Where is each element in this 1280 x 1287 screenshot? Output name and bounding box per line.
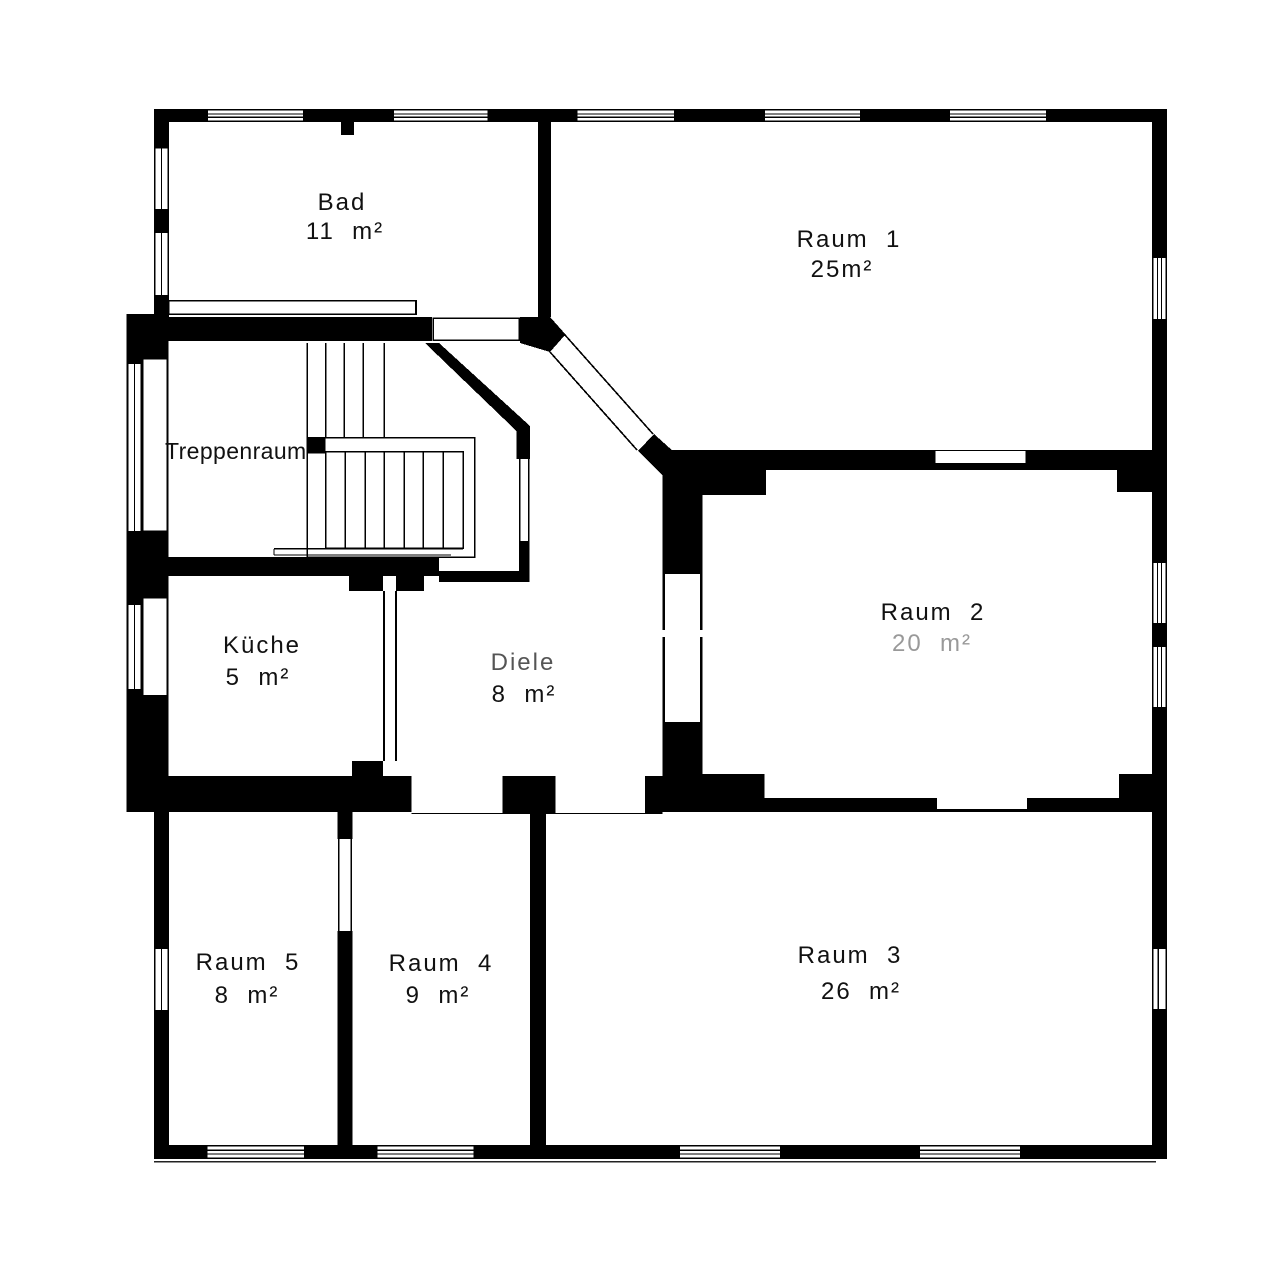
svg-text:9 m²: 9 m²	[406, 982, 471, 1009]
svg-text:Bad: Bad	[318, 189, 367, 216]
svg-text:Raum 3: Raum 3	[798, 942, 903, 969]
svg-text:Raum 1: Raum 1	[797, 226, 902, 253]
svg-text:26 m²: 26 m²	[821, 978, 901, 1005]
svg-text:8 m²: 8 m²	[215, 982, 280, 1009]
svg-text:20 m²: 20 m²	[892, 630, 972, 657]
svg-text:Treppenraum: Treppenraum	[165, 438, 307, 464]
svg-text:Raum 4: Raum 4	[389, 950, 494, 977]
svg-text:Raum 5: Raum 5	[196, 949, 301, 976]
svg-text:Küche: Küche	[223, 632, 301, 659]
svg-text:25m²: 25m²	[811, 256, 874, 283]
svg-text:11 m²: 11 m²	[306, 218, 384, 245]
svg-text:Diele: Diele	[491, 649, 556, 676]
svg-text:5 m²: 5 m²	[226, 664, 291, 691]
svg-text:8 m²: 8 m²	[492, 681, 557, 708]
svg-text:Raum 2: Raum 2	[881, 599, 986, 626]
